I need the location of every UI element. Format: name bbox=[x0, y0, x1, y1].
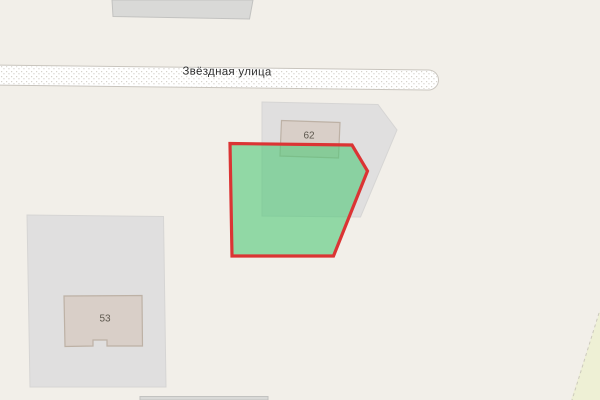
building-53 bbox=[64, 296, 143, 347]
landuse-sliver-bottom bbox=[140, 397, 268, 400]
street-unpaved-texture bbox=[0, 75, 429, 80]
map-canvas[interactable]: Звёздная улица 62 53 bbox=[0, 0, 600, 400]
gray-building-top bbox=[112, 0, 253, 19]
